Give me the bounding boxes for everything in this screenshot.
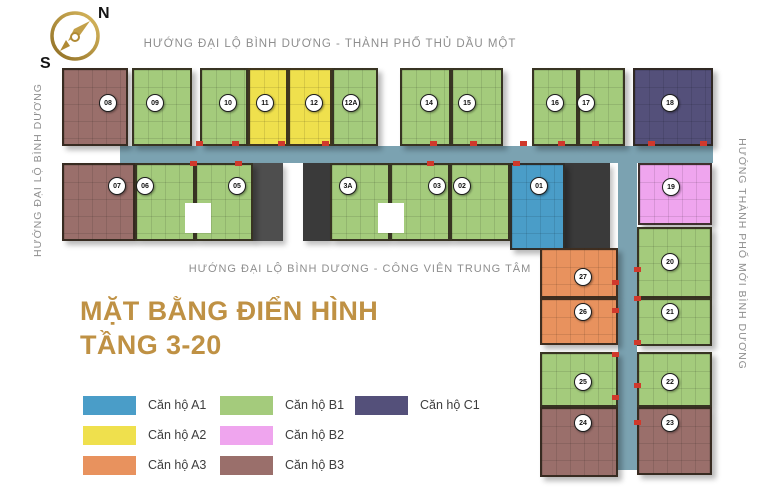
unit-badge-23: 23 <box>661 414 679 432</box>
legend-swatch-a3 <box>83 456 136 475</box>
unit-badge-07: 07 <box>108 177 126 195</box>
door-marker-4 <box>430 141 437 146</box>
door-marker-8 <box>592 141 599 146</box>
unit-badge-01: 01 <box>530 177 548 195</box>
door-marker-0 <box>196 141 203 146</box>
legend-item-a1: Căn hộ A1 <box>83 390 220 420</box>
door-marker-23 <box>634 420 641 425</box>
unit-badge-19: 19 <box>662 178 680 196</box>
door-marker-14 <box>513 161 520 166</box>
lightwell-0 <box>185 203 211 233</box>
unit-07 <box>62 163 135 241</box>
legend-label-b1: Căn hộ B1 <box>285 398 344 412</box>
legend-label-c1: Căn hộ C1 <box>420 398 480 412</box>
service-core-1 <box>303 163 330 241</box>
unit-badge-10: 10 <box>219 94 237 112</box>
unit-badge-18: 18 <box>661 94 679 112</box>
door-marker-22 <box>634 383 641 388</box>
page-title-line2: TẦNG 3-20 <box>80 328 378 362</box>
legend-item-b2: Căn hộ B2 <box>220 420 355 450</box>
unit-badge-16: 16 <box>546 94 564 112</box>
unit-badge-21: 21 <box>661 303 679 321</box>
compass-icon: N S <box>28 0 124 76</box>
door-marker-6 <box>520 141 527 146</box>
unit-08 <box>62 68 128 146</box>
unit-badge-12A: 12A <box>342 94 360 112</box>
legend-item-c1: Căn hộ C1 <box>355 390 505 420</box>
legend-item-a3: Căn hộ A3 <box>83 450 220 480</box>
unit-badge-24: 24 <box>574 414 592 432</box>
unit-badge-3A: 3A <box>339 177 357 195</box>
page-title: MẶT BẰNG ĐIỂN HÌNH TẦNG 3-20 <box>80 294 378 362</box>
door-marker-17 <box>612 352 619 357</box>
unit-02 <box>450 163 510 241</box>
unit-badge-09: 09 <box>146 94 164 112</box>
legend-swatch-c1 <box>355 396 408 415</box>
unit-badge-12: 12 <box>305 94 323 112</box>
compass-north-label: N <box>98 5 110 22</box>
unit-badge-26: 26 <box>574 303 592 321</box>
legend-swatch-a2 <box>83 426 136 445</box>
legend-swatch-b1 <box>220 396 273 415</box>
legend-swatch-b2 <box>220 426 273 445</box>
legend-label-a2: Căn hộ A2 <box>148 428 206 442</box>
legend: Căn hộ A1Căn hộ A2Căn hộ A3Căn hộ B1Căn … <box>83 390 505 480</box>
door-marker-20 <box>634 296 641 301</box>
page-title-line1: MẶT BẰNG ĐIỂN HÌNH <box>80 294 378 328</box>
unit-badge-05: 05 <box>228 177 246 195</box>
unit-badge-15: 15 <box>458 94 476 112</box>
door-marker-10 <box>700 141 707 146</box>
legend-swatch-b3 <box>220 456 273 475</box>
door-marker-5 <box>470 141 477 146</box>
door-marker-19 <box>634 267 641 272</box>
unit-badge-27: 27 <box>574 268 592 286</box>
door-marker-1 <box>232 141 239 146</box>
door-marker-3 <box>322 141 329 146</box>
unit-badge-06: 06 <box>136 177 154 195</box>
unit-badge-17: 17 <box>577 94 595 112</box>
door-marker-9 <box>648 141 655 146</box>
floorplan-page: N S HƯỚNG ĐẠI LỘ BÌNH DƯƠNG - THÀNH PHỐ … <box>0 0 776 488</box>
service-core-0 <box>253 163 283 241</box>
door-marker-7 <box>558 141 565 146</box>
compass-south-label: S <box>40 55 51 72</box>
lightwell-1 <box>378 203 404 233</box>
door-marker-18 <box>612 395 619 400</box>
door-marker-11 <box>190 161 197 166</box>
legend-label-a3: Căn hộ A3 <box>148 458 206 472</box>
unit-badge-20: 20 <box>661 253 679 271</box>
door-marker-12 <box>235 161 242 166</box>
unit-badge-25: 25 <box>574 373 592 391</box>
unit-badge-14: 14 <box>420 94 438 112</box>
door-marker-16 <box>612 308 619 313</box>
legend-label-b3: Căn hộ B3 <box>285 458 344 472</box>
legend-item-b1: Căn hộ B1 <box>220 390 355 420</box>
legend-label-a1: Căn hộ A1 <box>148 398 206 412</box>
door-marker-13 <box>427 161 434 166</box>
service-core-2 <box>562 163 610 250</box>
unit-badge-11: 11 <box>256 94 274 112</box>
unit-badge-22: 22 <box>661 373 679 391</box>
unit-badge-03: 03 <box>428 177 446 195</box>
door-marker-15 <box>612 280 619 285</box>
legend-label-b2: Căn hộ B2 <box>285 428 344 442</box>
unit-badge-02: 02 <box>453 177 471 195</box>
legend-item-a2: Căn hộ A2 <box>83 420 220 450</box>
door-marker-21 <box>634 340 641 345</box>
unit-badge-08: 08 <box>99 94 117 112</box>
legend-swatch-a1 <box>83 396 136 415</box>
door-marker-2 <box>278 141 285 146</box>
legend-item-b3: Căn hộ B3 <box>220 450 355 480</box>
